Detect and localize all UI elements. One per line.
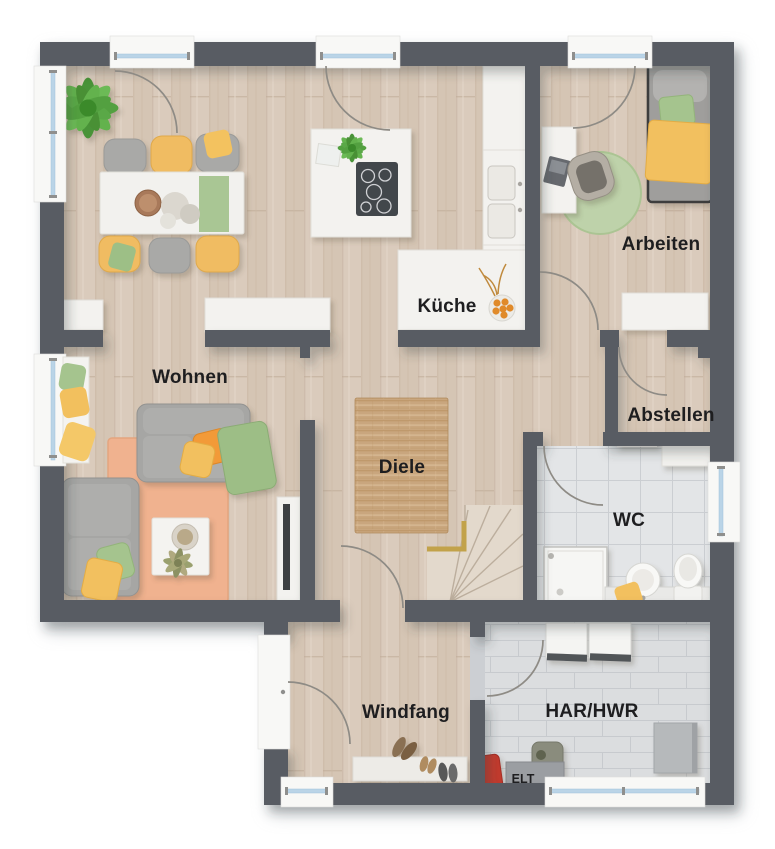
island-plant bbox=[338, 134, 367, 163]
cutting-board bbox=[316, 144, 342, 167]
laundry-items bbox=[536, 750, 546, 760]
floorplan-page: Küche Arbeiten Wohnen Abstellen Diele WC… bbox=[0, 0, 775, 849]
wall-half-dining-mid bbox=[205, 330, 330, 347]
decor-tray-inner bbox=[177, 529, 193, 545]
wall-wc-top-left bbox=[523, 432, 543, 446]
toilet-bowl bbox=[679, 557, 697, 581]
room-label-kueche: Küche bbox=[417, 296, 476, 317]
yellow-scarf bbox=[203, 129, 234, 160]
room-label-diele: Diele bbox=[379, 457, 425, 478]
table-runner bbox=[199, 176, 229, 232]
flower-bouquet bbox=[160, 213, 176, 229]
dryer bbox=[589, 623, 631, 658]
room-label-wohnen: Wohnen bbox=[152, 367, 228, 388]
room-label-abstellen: Abstellen bbox=[627, 405, 714, 426]
yellow-blanket bbox=[80, 557, 124, 604]
wall-exterior-bottom-mid bbox=[405, 600, 734, 622]
dining-set bbox=[99, 129, 244, 273]
room-label-hwr: HAR/HWR bbox=[545, 701, 638, 722]
decor-bowl-inner bbox=[139, 194, 157, 212]
palm-plant bbox=[58, 78, 119, 139]
dining-chair bbox=[104, 139, 146, 174]
wall-living-hall bbox=[300, 420, 315, 600]
window-hwr-bottom bbox=[545, 777, 705, 807]
front-door bbox=[258, 635, 290, 749]
utility-unit-shade bbox=[692, 723, 697, 773]
wall-hall-office bbox=[600, 330, 619, 347]
sideboard bbox=[205, 298, 330, 332]
kitchen-sink bbox=[488, 166, 515, 200]
office-sideboard bbox=[622, 293, 708, 330]
faucet bbox=[518, 208, 522, 212]
room-label-windfang: Windfang bbox=[362, 702, 450, 723]
wall-storage-left bbox=[605, 347, 618, 432]
window-dining-top bbox=[110, 36, 194, 68]
wall-half-dining-left bbox=[40, 330, 103, 347]
wall-kitchen-counterwall bbox=[398, 330, 538, 347]
yellow-blanket bbox=[645, 120, 715, 184]
shower-head bbox=[548, 553, 554, 559]
room-label-arbeiten: Arbeiten bbox=[622, 234, 701, 255]
shower-drain bbox=[557, 589, 564, 596]
yellow-pillow bbox=[59, 386, 91, 419]
wall-stub-right bbox=[698, 347, 710, 358]
washer-panel bbox=[547, 653, 587, 661]
floorplan-drawing: Küche Arbeiten Wohnen Abstellen Diele WC… bbox=[0, 0, 775, 849]
dining-chair bbox=[151, 136, 192, 174]
window-office-top bbox=[568, 36, 652, 68]
tv bbox=[283, 504, 290, 590]
wall-stub bbox=[300, 347, 310, 358]
wall-office-storage bbox=[667, 330, 734, 347]
window-dining-left bbox=[34, 66, 66, 202]
sofa-seat bbox=[68, 484, 131, 536]
dryer-panel bbox=[590, 653, 631, 661]
dining-chair bbox=[196, 236, 239, 272]
faucet bbox=[518, 182, 522, 186]
window-windfang-bottom bbox=[281, 777, 333, 807]
washing-machine bbox=[546, 623, 587, 658]
wall-wc-top-right bbox=[603, 432, 734, 446]
wall-windfang-hwr-upper bbox=[470, 622, 485, 637]
wood-floor-door-sill bbox=[340, 600, 405, 622]
wall-kitchen-office bbox=[525, 42, 540, 347]
wall-exterior-bottom-left bbox=[40, 600, 340, 622]
wall-wc-left bbox=[523, 446, 537, 600]
wall-windfang-hwr-lower bbox=[470, 700, 485, 783]
flower-bouquet bbox=[180, 204, 200, 224]
kitchen-sink bbox=[488, 204, 515, 238]
window-kitchen-top bbox=[316, 36, 400, 68]
room-label-elt: ELT bbox=[512, 772, 535, 786]
dining-chair bbox=[149, 238, 190, 273]
utility-unit bbox=[654, 723, 697, 773]
yellow-pillow bbox=[179, 440, 216, 479]
room-label-wc: WC bbox=[613, 510, 645, 531]
window-wc-right bbox=[708, 462, 740, 542]
